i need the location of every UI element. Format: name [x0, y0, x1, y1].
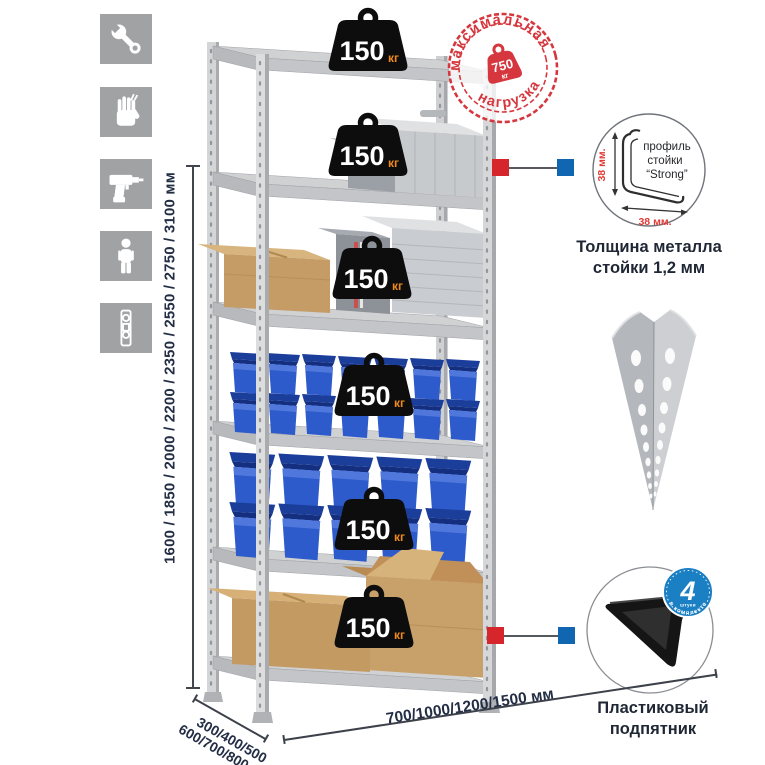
- svg-text:150: 150: [345, 613, 390, 643]
- plastic-foot-detail: 4 штуки в комплекте: [578, 558, 734, 713]
- shelf-load-badge: 150кг: [322, 482, 426, 562]
- svg-text:кг: кг: [394, 530, 405, 544]
- svg-text:150: 150: [339, 141, 384, 171]
- svg-text:150: 150: [343, 264, 388, 294]
- shelf-load-badge: 150кг: [322, 348, 426, 428]
- height-dimension-label: 1600 / 1850 / 2000 / 2200 / 2350 / 2550 …: [162, 172, 179, 564]
- svg-text:кг: кг: [388, 51, 399, 65]
- level-icon: [100, 303, 152, 353]
- marker-red-top: [492, 159, 509, 176]
- svg-text:кг: кг: [392, 279, 403, 293]
- svg-text:“Strong”: “Strong”: [646, 169, 688, 181]
- shelf-load-badge: 150кг: [316, 108, 420, 188]
- svg-text:150: 150: [345, 381, 390, 411]
- foot-caption: Пластиковый подпятник: [562, 698, 744, 740]
- wrench-icon: [100, 14, 152, 64]
- svg-text:кг: кг: [394, 628, 405, 642]
- svg-text:стойки: стойки: [647, 155, 682, 167]
- shelf-load-badge: 150кг: [316, 3, 420, 83]
- svg-text:38 мм.: 38 мм.: [596, 148, 608, 181]
- svg-text:профиль: профиль: [643, 141, 691, 153]
- svg-text:4: 4: [679, 576, 695, 606]
- leader-line-bottom: [504, 635, 559, 637]
- product-infographic: 1600 / 1850 / 2000 / 2200 / 2350 / 2550 …: [0, 0, 765, 765]
- included-count-badge: 4 штуки в комплекте: [663, 567, 713, 617]
- marker-blue-top: [557, 159, 574, 176]
- svg-text:150: 150: [345, 515, 390, 545]
- shelf-load-badge: 150кг: [320, 231, 424, 311]
- svg-text:кг: кг: [394, 396, 405, 410]
- person-icon: [100, 231, 152, 281]
- profile-detail: 38 мм. 38 мм. профиль стойки “Strong”: [585, 108, 713, 241]
- leader-line-top: [509, 167, 559, 169]
- marker-red-bottom: [487, 627, 504, 644]
- svg-text:кг: кг: [388, 156, 399, 170]
- marker-blue-bottom: [558, 627, 575, 644]
- shelf-load-badge: 150кг: [322, 580, 426, 660]
- gloves-icon: [100, 87, 152, 137]
- drill-icon: [100, 159, 152, 209]
- svg-text:штуки: штуки: [680, 603, 696, 608]
- svg-text:150: 150: [339, 36, 384, 66]
- profile-caption: Толщина металла стойки 1,2 мм: [558, 237, 740, 279]
- svg-text:38 мм.: 38 мм.: [638, 216, 671, 228]
- angle-post-figure: [598, 300, 702, 530]
